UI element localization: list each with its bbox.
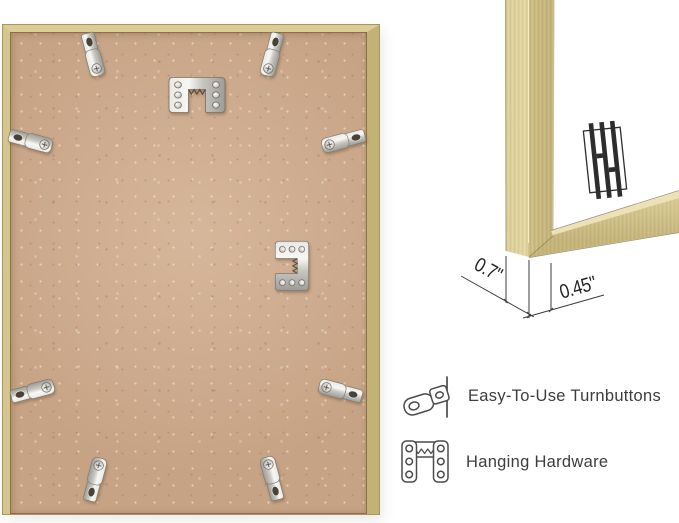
frame-corner-vertical-rail [505, 0, 554, 257]
feature-label: Hanging Hardware [466, 453, 608, 472]
turnbutton-icon [399, 372, 453, 420]
frame-back-photo [3, 25, 379, 514]
turnbutton [320, 128, 366, 154]
turnbutton [82, 456, 108, 502]
feature-label: Easy-To-Use Turnbuttons [468, 387, 661, 406]
turnbutton [259, 455, 285, 501]
sawtooth-hanger [275, 241, 308, 290]
product-infographic: 0.7" 0.45" Easy-To-Use Turnbuttons Hangi… [0, 0, 679, 523]
turnbutton [9, 378, 55, 404]
turnbutton [259, 31, 285, 77]
brand-logo [583, 120, 628, 199]
hanging-hardware-icon [399, 439, 451, 485]
hardware-layer [3, 25, 379, 514]
feature-hanging-hardware: Hanging Hardware [399, 437, 608, 487]
turnbutton [7, 128, 53, 154]
feature-turnbuttons: Easy-To-Use Turnbuttons [399, 371, 661, 421]
turnbutton [80, 31, 106, 77]
sawtooth-hanger [169, 78, 225, 113]
turnbutton [317, 378, 363, 404]
